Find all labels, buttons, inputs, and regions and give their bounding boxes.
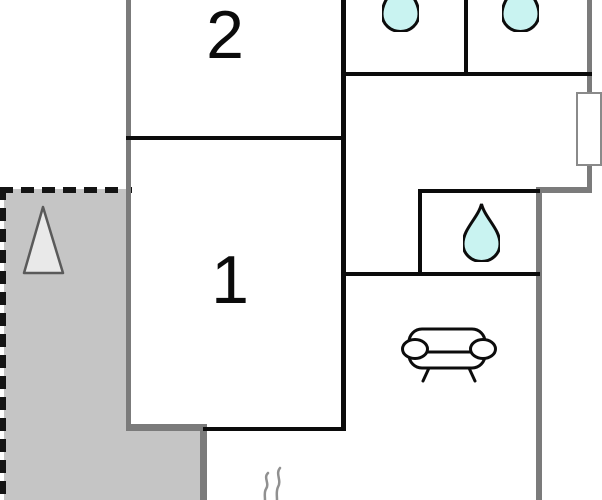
wall-room1-south — [203, 427, 346, 431]
sofa-icon — [400, 324, 498, 384]
wall-west — [126, 0, 131, 431]
wall-east-jog — [536, 187, 592, 193]
wall-terrace-east — [200, 424, 207, 500]
terrace-dashed-boundary-top — [0, 187, 132, 193]
wall-wc-west — [418, 189, 422, 276]
wall-south-step — [126, 424, 207, 431]
terrace-area-extension — [126, 424, 204, 500]
wall-room-divider — [126, 136, 346, 140]
terrace-dashed-boundary-left — [0, 187, 6, 500]
water-drop-icon — [463, 202, 500, 262]
room-2-label: 2 — [190, 0, 260, 70]
room-1-label: 1 — [195, 245, 265, 315]
wall-wc-north — [418, 189, 540, 193]
wall-east-lower — [536, 187, 542, 500]
water-drop-icon — [502, 0, 539, 32]
floor-plan: 2 1 — [0, 0, 602, 500]
tree-icon — [20, 203, 67, 276]
wall-bathroom-divider — [464, 0, 468, 76]
window — [576, 92, 602, 166]
wall-bathrooms-south — [341, 72, 592, 76]
steam-icon — [256, 464, 286, 500]
wall-hall-south — [341, 272, 540, 276]
water-drop-icon — [382, 0, 419, 32]
wall-center-vertical — [341, 0, 346, 431]
